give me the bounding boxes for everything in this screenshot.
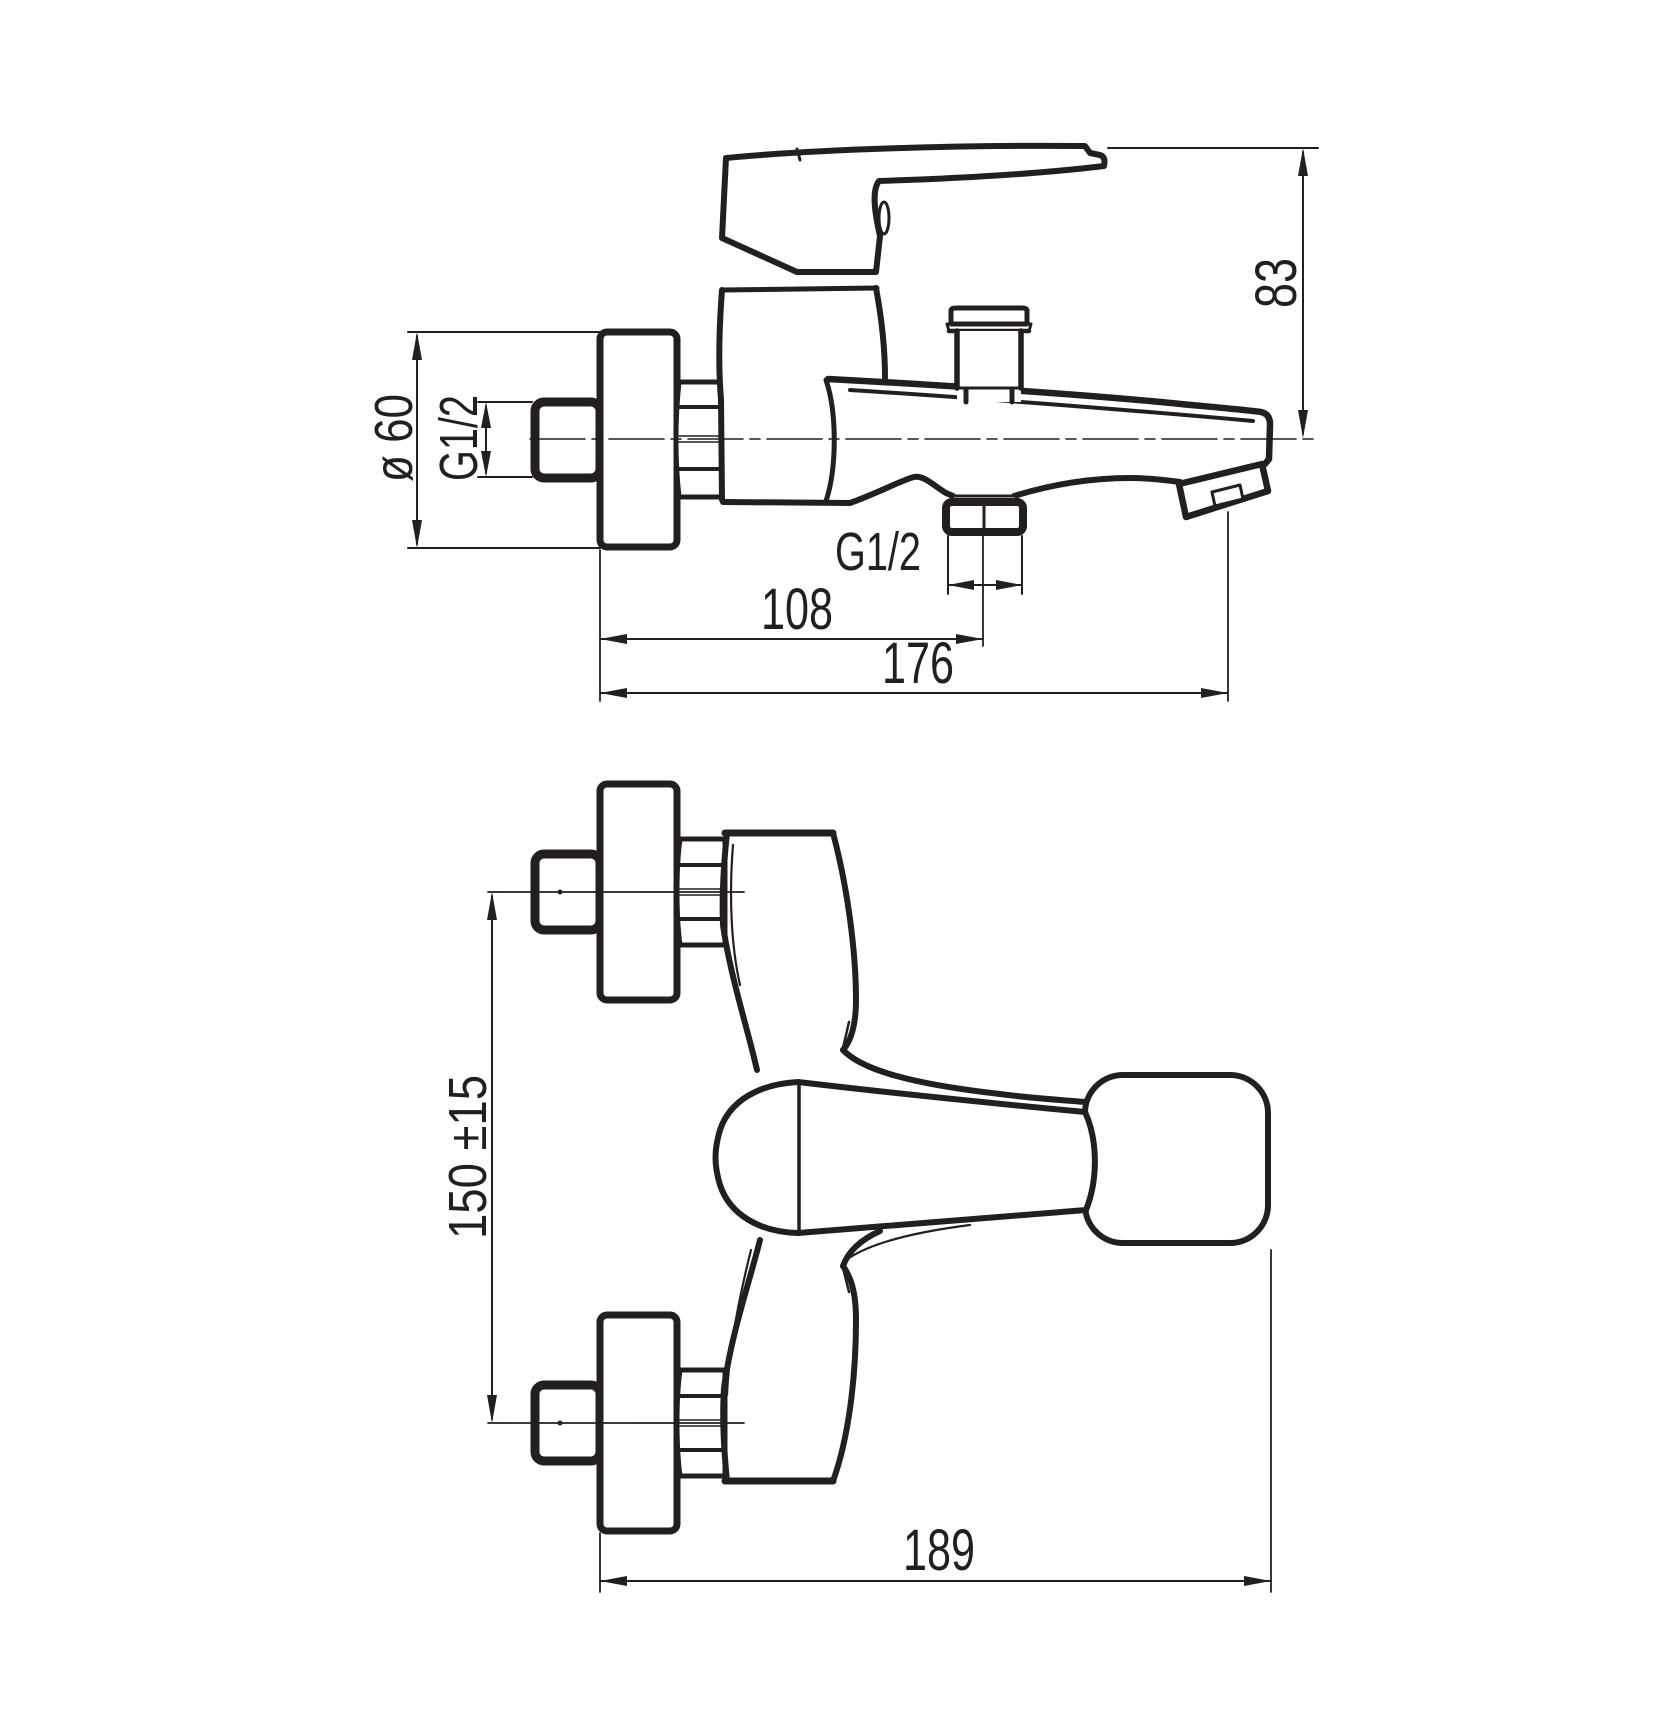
side-wall-thread: [535, 402, 600, 478]
plan-bottom-center-dot: [558, 1421, 563, 1426]
dim-flange-diameter-label: ø 60: [364, 394, 424, 482]
faucet-technical-drawing: 83 ø 60 G1/2 G1/2: [0, 0, 1674, 1734]
dim-wall-to-spout-tip-label: 176: [882, 631, 954, 696]
side-body-seam: [722, 288, 877, 290]
plan-upper-trunk: [723, 833, 1085, 1102]
plan-lower-trunk: [723, 1225, 970, 1481]
dim-spout-height-label: 83: [1244, 258, 1309, 308]
page: 83 ø 60 G1/2 G1/2: [0, 0, 1674, 1734]
side-lever-handle: [722, 146, 1105, 272]
side-diverter-knob: [947, 308, 1031, 402]
dim-outlet-thread-label: G1/2: [835, 522, 921, 582]
dim-wall-to-outlet-label: 108: [761, 577, 833, 642]
dim-wall-thread: G1/2: [429, 395, 532, 481]
dim-connection-spacing-label: 150 ±15: [438, 1075, 498, 1239]
dim-wall-to-spout-tip: 176: [600, 631, 1228, 698]
side-body-left-edge: [719, 290, 722, 500]
side-outlet-fitting: [946, 496, 1023, 532]
dim-spout-height: 83: [1108, 148, 1318, 438]
plan-view: [488, 784, 1268, 1531]
plan-top-center-dot: [558, 890, 563, 895]
plan-spout-end: [1085, 1075, 1268, 1243]
dim-connection-spacing: 150 ±15: [438, 892, 498, 1423]
dim-wall-thread-label: G1/2: [429, 395, 489, 481]
dim-overall-depth-label: 189: [903, 1518, 975, 1583]
side-view: [530, 146, 1315, 547]
side-lever-pivot: [879, 202, 889, 234]
